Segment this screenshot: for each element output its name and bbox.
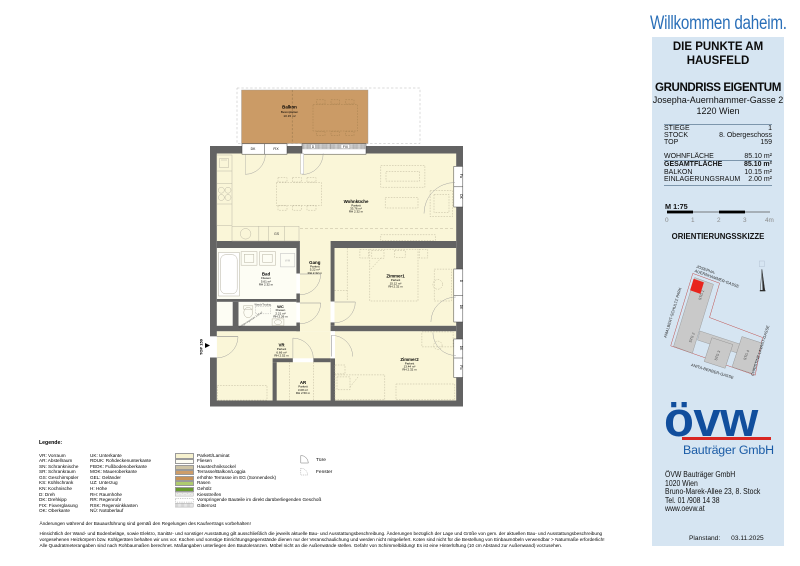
- svg-text:GS: GS: [274, 232, 280, 236]
- svg-text:Fix: Fix: [459, 174, 463, 179]
- svg-text:2: 2: [717, 217, 721, 224]
- svg-text:RH 2.26 m: RH 2.26 m: [273, 314, 288, 318]
- svg-text:0: 0: [665, 217, 669, 224]
- svg-text:4m: 4m: [765, 217, 774, 224]
- svg-text:FIX: FIX: [273, 147, 279, 151]
- svg-text:Fix: Fix: [459, 365, 463, 370]
- svg-text:RH 2.32 m: RH 2.32 m: [308, 271, 323, 275]
- svg-text:RH 2.50 m: RH 2.50 m: [296, 391, 311, 395]
- svg-text:RH 2.32 m: RH 2.32 m: [259, 282, 274, 286]
- svg-text:RH 2.32 m: RH 2.32 m: [402, 368, 417, 372]
- svg-text:RH 2.32 m: RH 2.32 m: [349, 210, 364, 214]
- svg-text:DK: DK: [251, 147, 256, 151]
- svg-text:TOP 159: TOP 159: [199, 338, 204, 355]
- svg-text:1: 1: [691, 217, 695, 224]
- svg-text:WM: WM: [285, 259, 291, 263]
- svg-text:ANITA-BERBER-GASSE: ANITA-BERBER-GASSE: [690, 362, 734, 380]
- svg-text:Wasch/Trockng.: Wasch/Trockng.: [254, 303, 271, 306]
- svg-text:3: 3: [743, 217, 747, 224]
- svg-text:RH 2.32 m: RH 2.32 m: [388, 284, 403, 288]
- svg-text:RH 2.52 m: RH 2.52 m: [274, 353, 289, 357]
- svg-text:FIX: FIX: [343, 145, 349, 149]
- svg-text:10.15 m²: 10.15 m²: [283, 114, 295, 118]
- svg-text:Balkon: Balkon: [282, 105, 297, 110]
